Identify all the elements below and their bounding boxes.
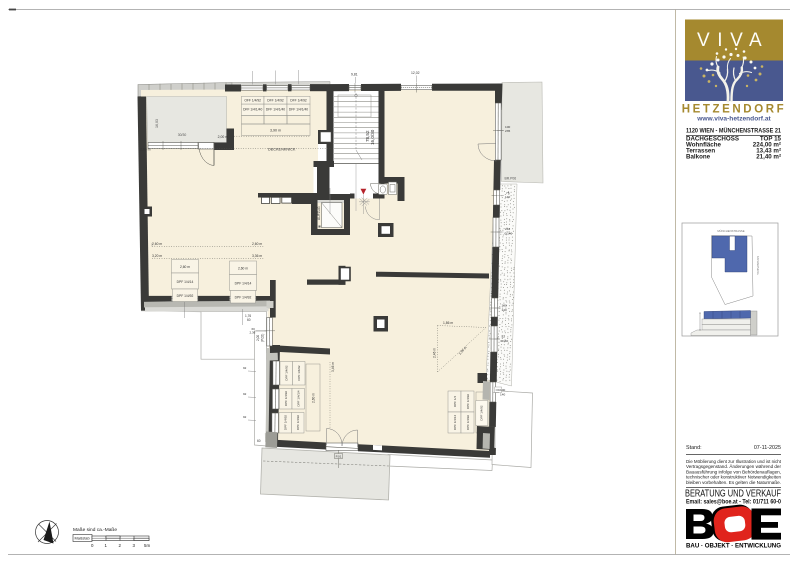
svg-text:Maße sind ca.-Maße: Maße sind ca.-Maße	[73, 527, 117, 533]
svg-text:0/140: 0/140	[501, 339, 509, 343]
svg-text:140: 140	[505, 195, 510, 199]
svg-text:DPF 1/4/92: DPF 1/4/92	[284, 391, 288, 407]
svg-text:Bauausführung infolge von B: Bauausführung infolge von Behördenauflag…	[686, 469, 781, 475]
svg-text:BAU · OBJEKT · ENTWICKLUNG: BAU · OBJEKT · ENTWICKLUNG	[686, 543, 781, 550]
svg-text:DPF 1/4/14: DPF 1/4/14	[177, 280, 194, 284]
svg-text:3,36 m: 3,36 m	[252, 254, 262, 258]
svg-text:92: 92	[243, 366, 247, 370]
svg-text:DPF 1/4/92: DPF 1/4/92	[235, 296, 252, 300]
svg-text:DPF 1/4/92: DPF 1/4/92	[296, 415, 300, 431]
svg-text:DPF 1/4/92: DPF 1/4/92	[466, 394, 470, 410]
svg-text:Stand:: Stand:	[686, 445, 702, 451]
svg-text:100: 100	[502, 304, 507, 308]
svg-text:2,60 m: 2,60 m	[252, 242, 262, 246]
svg-text:DFF 1/4/1/40: DFF 1/4/1/40	[289, 108, 308, 112]
svg-text:DPF 1/4/14: DPF 1/4/14	[235, 282, 252, 286]
svg-text:AUFZUG: AUFZUG	[317, 206, 321, 220]
svg-text:92: 92	[243, 415, 247, 419]
svg-text:1,86 m: 1,86 m	[443, 321, 453, 325]
svg-text:(P.02): (P.02)	[261, 334, 265, 342]
svg-text:242: 242	[505, 227, 510, 231]
svg-text:technischer oder konstruktiv: technischer oder konstruktiver Notwendig…	[686, 475, 781, 481]
svg-text:52: 52	[502, 335, 506, 339]
svg-text:P.01: P.01	[336, 455, 342, 459]
svg-text:235: 235	[505, 129, 510, 133]
svg-text:DFF 1/4/92: DFF 1/4/92	[267, 99, 284, 103]
svg-text:2,60 m: 2,60 m	[238, 267, 248, 271]
svg-text:5m: 5m	[144, 543, 150, 548]
svg-text:OFF 1/4/92: OFF 1/4/92	[244, 99, 261, 103]
svg-text:07-11-2025: 07-11-2025	[754, 445, 781, 451]
svg-text:Die Möblierung dient zur Illus: Die Möblierung dient zur Illustration un…	[686, 459, 782, 465]
svg-text:www.viva-hetzendorf.at: www.viva-hetzendorf.at	[696, 116, 771, 123]
svg-text:DPF 1/4/1/4: DPF 1/4/1/4	[297, 390, 301, 406]
svg-text:2,60 m: 2,60 m	[152, 242, 162, 246]
svg-text:1: 1	[105, 543, 108, 548]
svg-text:DFF 1/4/92: DFF 1/4/92	[290, 99, 307, 103]
svg-text:2,00: 2,00	[256, 335, 260, 341]
svg-text:16,03: 16,03	[155, 119, 159, 128]
svg-text:1120 WIEN - MÜNCHENSTRASSE 21: 1120 WIEN - MÜNCHENSTRASSE 21	[686, 126, 781, 135]
svg-text:DFF 1/4/1/40: DFF 1/4/1/40	[266, 108, 285, 112]
svg-text:KATHARINENG.: KATHARINENG.	[756, 256, 760, 276]
svg-text:100: 100	[500, 388, 505, 392]
svg-text:140: 140	[502, 308, 507, 312]
svg-text:Balkone: Balkone	[686, 154, 711, 161]
svg-text:DPF 1/4/92: DPF 1/4/92	[297, 365, 301, 381]
svg-text:DFF 1/4/1/40: DFF 1/4/1/40	[243, 108, 262, 112]
svg-text:0/140: 0/140	[505, 232, 513, 236]
svg-text:60: 60	[247, 318, 251, 322]
svg-text:Email: sales@boe.at - Tel: 0: Email: sales@boe.at - Tel: 01/711 60-0	[686, 499, 781, 506]
svg-text:60: 60	[257, 439, 261, 443]
svg-text:Maßstab: Maßstab	[75, 536, 90, 541]
svg-text:DPF 1/4: DPF 1/4	[453, 396, 457, 407]
svg-text:MÜNCHENSTRASSE: MÜNCHENSTRASSE	[717, 229, 744, 233]
svg-text:3,46 m: 3,46 m	[331, 362, 335, 372]
svg-text:VIVA: VIVA	[697, 30, 769, 51]
svg-text:2,60 m: 2,60 m	[140, 147, 151, 151]
svg-text:9,81: 9,81	[351, 73, 358, 77]
svg-text:2,60 m: 2,60 m	[312, 393, 316, 403]
svg-text:21,40 m²: 21,40 m²	[756, 154, 781, 161]
svg-text:16,0/30: 16,0/30	[370, 129, 375, 145]
svg-text:2,36: 2,36	[250, 331, 256, 335]
svg-text:DPF 1/4/92: DPF 1/4/92	[480, 405, 484, 421]
svg-text:BR.P06: BR.P06	[505, 177, 517, 181]
svg-text:30/30: 30/30	[178, 133, 187, 137]
svg-text:bleiben vorbehalten. Es gelten: bleiben vorbehalten. Es gelten die Natur…	[686, 480, 781, 486]
svg-text:DPF 1/4/92: DPF 1/4/92	[285, 365, 289, 381]
svg-text:DPF 1/4/14: DPF 1/4/14	[453, 415, 457, 431]
svg-text:3,90 m: 3,90 m	[270, 129, 281, 133]
svg-text:92: 92	[243, 392, 247, 396]
svg-text:0: 0	[91, 543, 94, 548]
svg-text:140: 140	[500, 393, 505, 397]
svg-text:12,02: 12,02	[411, 71, 420, 75]
svg-text:DPF 1/4/92: DPF 1/4/92	[177, 294, 194, 298]
svg-text:3,20 m: 3,20 m	[152, 254, 162, 258]
svg-text:2,00 m: 2,00 m	[218, 135, 229, 139]
svg-text:3: 3	[133, 543, 136, 548]
svg-text:2,60 m: 2,60 m	[180, 265, 190, 269]
svg-text:DPF 1/4/92: DPF 1/4/92	[284, 415, 288, 431]
svg-text:HETZENDORF: HETZENDORF	[682, 104, 787, 116]
svg-text:2,46 m: 2,46 m	[433, 348, 437, 358]
svg-text:DECKENKNICK: DECKENKNICK	[268, 147, 296, 151]
svg-text:DPF 1/4/92: DPF 1/4/92	[466, 415, 470, 431]
svg-text:2: 2	[119, 543, 122, 548]
svg-text:Vertragsgegenstand. Änderunge: Vertragsgegenstand. Änderungen während d…	[686, 463, 781, 470]
